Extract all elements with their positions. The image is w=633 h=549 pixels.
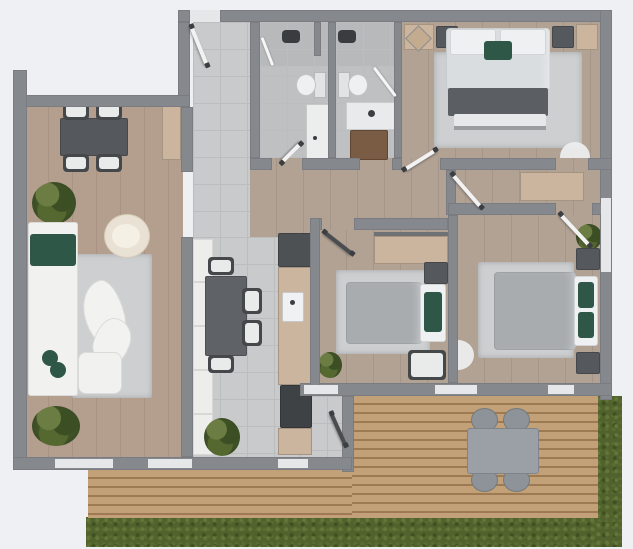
living-window bbox=[55, 459, 113, 468]
wall bbox=[220, 10, 612, 22]
armchair-seat bbox=[112, 224, 140, 248]
single-bed-duvet bbox=[346, 282, 422, 344]
bedroom2-chair bbox=[408, 350, 446, 380]
wall bbox=[250, 158, 272, 170]
bed-bench bbox=[454, 114, 546, 126]
plant bbox=[32, 182, 76, 224]
right-wall-window bbox=[601, 198, 611, 272]
wall bbox=[178, 10, 190, 22]
wall bbox=[310, 218, 320, 396]
faucet-icon bbox=[368, 110, 375, 117]
kitchen-table bbox=[205, 276, 247, 356]
kitchen-counter bbox=[278, 267, 312, 385]
dining-chair bbox=[63, 154, 89, 172]
nightstand bbox=[576, 248, 600, 270]
washer-knob-icon bbox=[313, 136, 317, 140]
living-window bbox=[148, 459, 192, 468]
wall bbox=[181, 107, 193, 172]
wall bbox=[448, 203, 556, 215]
vanity-cabinet bbox=[350, 130, 388, 160]
wall bbox=[13, 70, 27, 470]
wall bbox=[440, 158, 556, 170]
bed-blanket bbox=[448, 88, 548, 116]
bed-bench-shadow bbox=[454, 126, 546, 130]
hall-sideboard bbox=[520, 172, 584, 201]
ottoman bbox=[78, 352, 122, 394]
wardrobe bbox=[576, 24, 598, 50]
plant bbox=[204, 418, 240, 456]
plant bbox=[318, 352, 342, 378]
toilet bbox=[348, 74, 368, 96]
shower2-floor bbox=[336, 22, 394, 66]
wall bbox=[448, 215, 458, 383]
garden-grass-bottom bbox=[86, 517, 622, 547]
kitchen-counter-end bbox=[278, 428, 312, 455]
sofa-green-cushions bbox=[30, 234, 76, 266]
nightstand bbox=[552, 26, 574, 48]
dining-sideboard bbox=[162, 100, 181, 160]
green-pillow bbox=[578, 312, 594, 338]
shower-head-icon bbox=[338, 30, 356, 43]
toilet bbox=[296, 74, 316, 96]
kitchen-chair bbox=[208, 355, 234, 373]
kitchen-chair bbox=[242, 320, 262, 346]
wall bbox=[13, 95, 190, 107]
kitchen-sink bbox=[282, 292, 304, 322]
wall bbox=[181, 237, 193, 457]
wardrobe bbox=[374, 232, 448, 264]
green-pillow bbox=[578, 282, 594, 308]
wall bbox=[328, 22, 336, 158]
wall-stub bbox=[314, 22, 321, 56]
garden-grass-right bbox=[596, 396, 622, 547]
double-bed-duvet bbox=[494, 272, 576, 350]
wall bbox=[250, 22, 260, 158]
faucet-icon bbox=[290, 300, 295, 305]
wall bbox=[588, 158, 612, 170]
sofa-green-pillow bbox=[50, 362, 66, 378]
deck-threshold bbox=[304, 385, 338, 394]
wall bbox=[302, 158, 360, 170]
nightstand bbox=[576, 352, 600, 374]
nightstand bbox=[424, 262, 448, 284]
entry-threshold bbox=[190, 10, 220, 22]
wall bbox=[354, 218, 448, 230]
deck-threshold bbox=[435, 385, 477, 394]
deck-threshold bbox=[548, 385, 574, 394]
green-cushion bbox=[484, 41, 512, 60]
plant bbox=[32, 406, 80, 446]
kitchen-chair bbox=[242, 288, 262, 314]
washer-column bbox=[306, 104, 330, 162]
outdoor-table bbox=[467, 428, 539, 474]
green-pillow bbox=[424, 292, 442, 332]
wall bbox=[394, 22, 402, 158]
dining-table bbox=[60, 118, 128, 156]
kitchen-chair bbox=[208, 257, 234, 275]
shower-head-icon bbox=[282, 30, 300, 43]
floor-plan bbox=[0, 0, 633, 549]
fridge-cabinet bbox=[278, 233, 312, 267]
dining-chair bbox=[96, 154, 122, 172]
kitchen-window bbox=[278, 459, 308, 468]
